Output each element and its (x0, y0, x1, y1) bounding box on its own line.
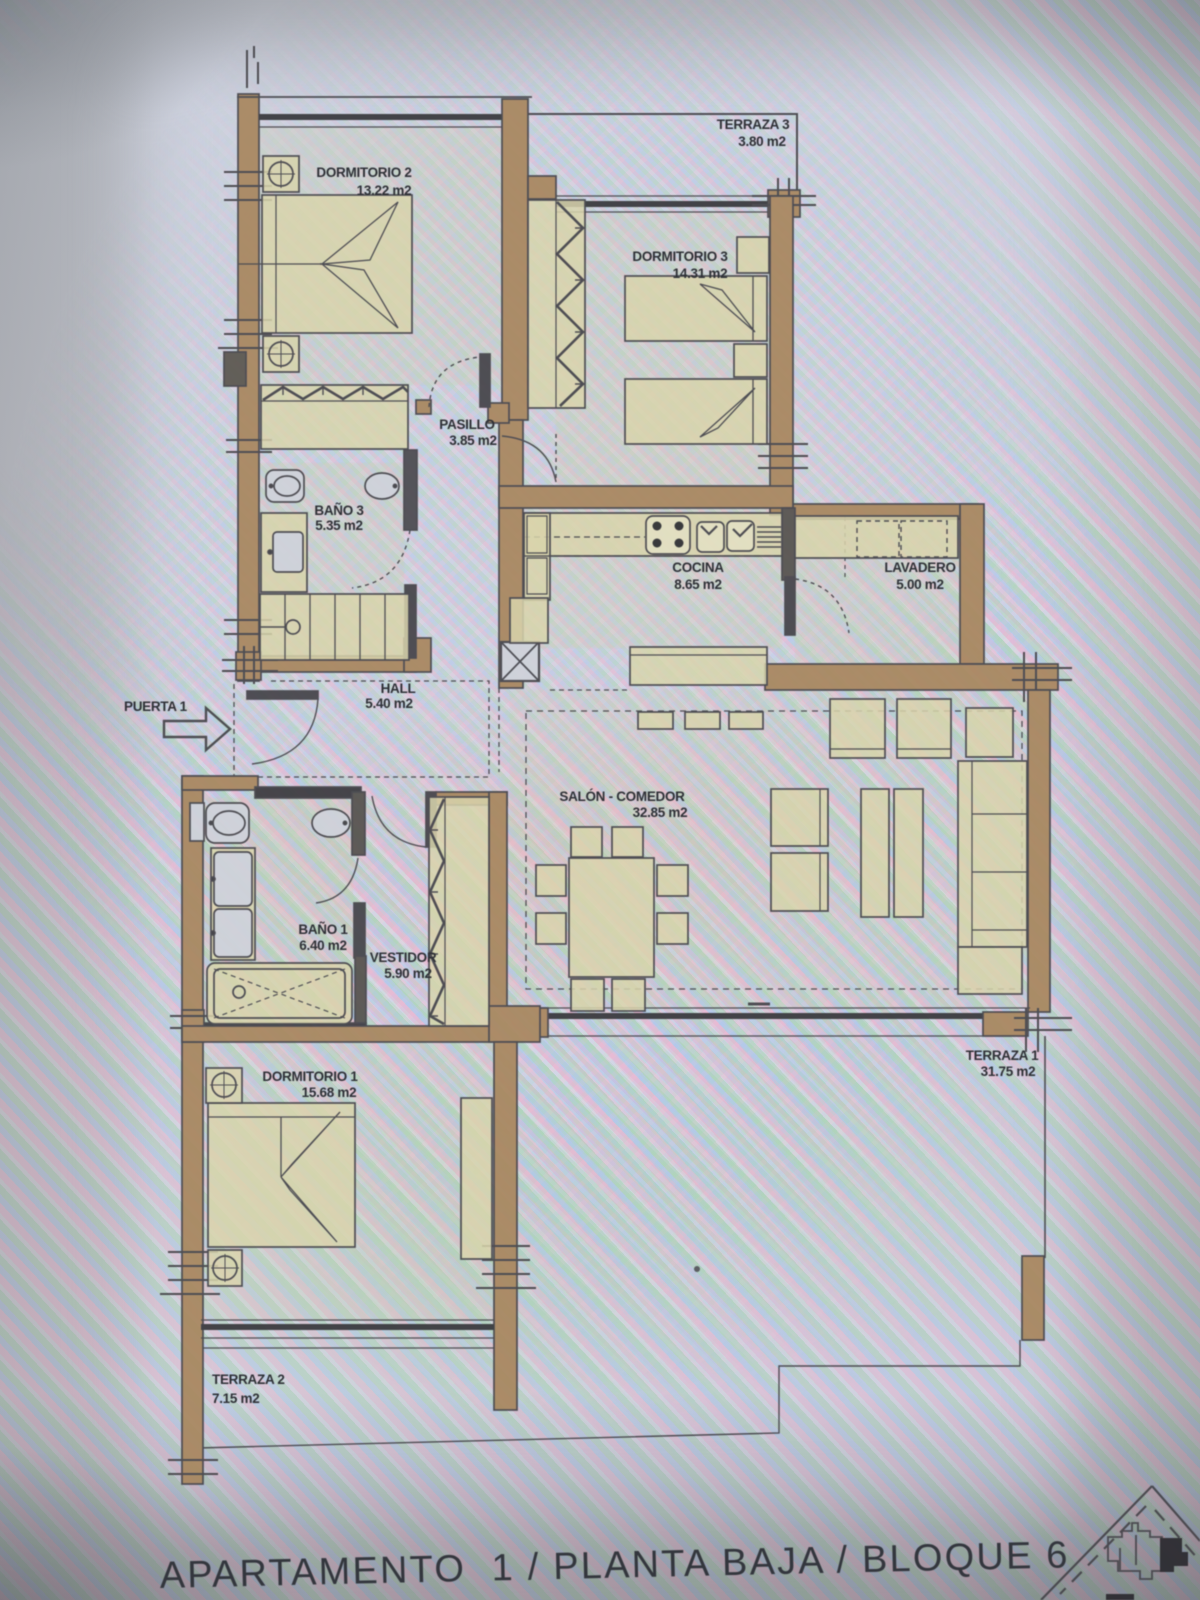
svg-text:PASILLO: PASILLO (439, 417, 494, 432)
svg-text:13.22 m2: 13.22 m2 (357, 183, 412, 198)
svg-text:5.00 m2: 5.00 m2 (896, 577, 943, 592)
svg-text:PUERTA 1: PUERTA 1 (124, 699, 188, 714)
svg-text:TERRAZA 3: TERRAZA 3 (717, 117, 790, 132)
svg-text:5.35 m2: 5.35 m2 (315, 518, 362, 533)
svg-text:5.40 m2: 5.40 m2 (365, 696, 412, 711)
svg-text:31.75 m2: 31.75 m2 (981, 1064, 1036, 1079)
svg-text:LAVADERO: LAVADERO (884, 560, 955, 575)
svg-text:15.68 m2: 15.68 m2 (302, 1085, 357, 1100)
svg-text:TERRAZA 2: TERRAZA 2 (212, 1372, 285, 1387)
svg-text:BAÑO 1: BAÑO 1 (298, 922, 348, 937)
svg-text:APARTAMENTO 1 / PLANTA BAJA /: APARTAMENTO 1 / PLANTA BAJA / BLOQUE 6 (159, 1534, 1070, 1597)
svg-text:HALL: HALL (381, 681, 416, 696)
svg-text:5.90 m2: 5.90 m2 (384, 966, 431, 981)
svg-text:3.80 m2: 3.80 m2 (738, 134, 785, 149)
svg-text:COCINA: COCINA (672, 560, 724, 575)
svg-text:6.40 m2: 6.40 m2 (299, 938, 346, 953)
svg-text:TERRAZA 1: TERRAZA 1 (966, 1048, 1039, 1063)
svg-text:DORMITORIO 2: DORMITORIO 2 (316, 165, 411, 180)
svg-text:14.31 m2: 14.31 m2 (673, 266, 728, 281)
svg-text:DORMITORIO 1: DORMITORIO 1 (262, 1069, 358, 1084)
svg-text:8.65 m2: 8.65 m2 (674, 577, 721, 592)
svg-text:DORMITORIO 3: DORMITORIO 3 (632, 249, 728, 264)
svg-text:3.85 m2: 3.85 m2 (449, 433, 496, 448)
svg-text:7.15 m2: 7.15 m2 (212, 1391, 259, 1406)
svg-text:SALÓN - COMEDOR: SALÓN - COMEDOR (559, 789, 685, 804)
svg-text:VESTIDOR: VESTIDOR (370, 950, 437, 965)
svg-text:32.85 m2: 32.85 m2 (633, 805, 688, 820)
svg-text:BAÑO 3: BAÑO 3 (314, 503, 364, 518)
